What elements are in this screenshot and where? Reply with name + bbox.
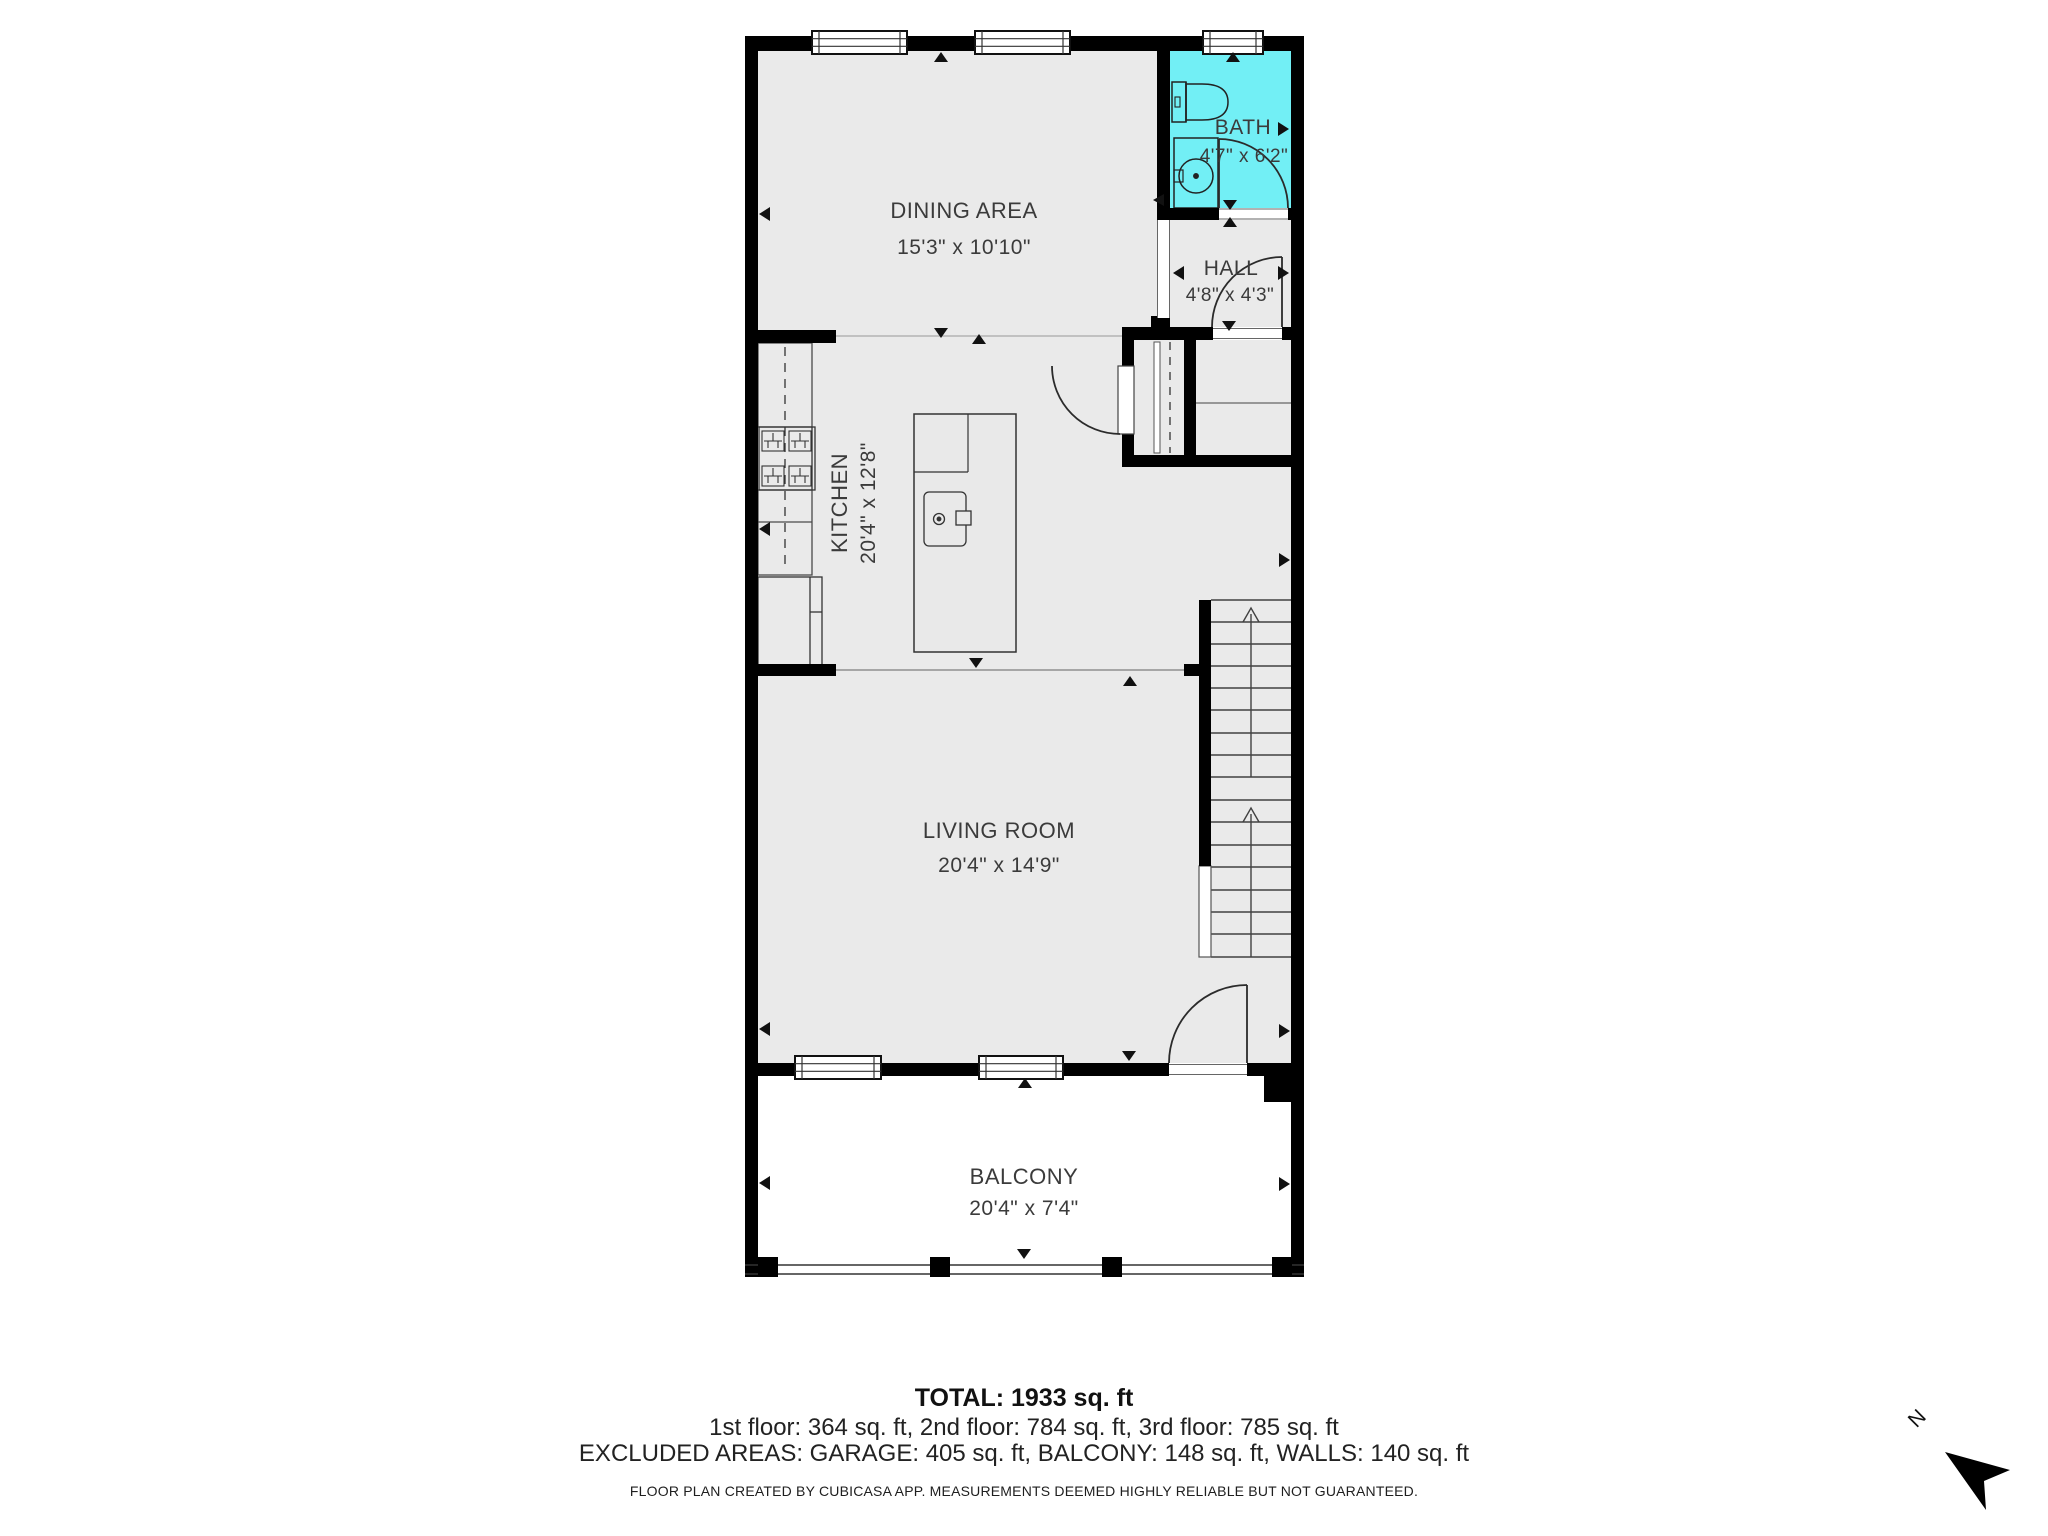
compass: N [1900, 1395, 2048, 1536]
dining-area-dims: 15'3" x 10'10" [897, 236, 1031, 260]
wall-kitchen-stub [745, 330, 836, 343]
kitchen-label-block: KITCHEN 20'4" x 12'8" [825, 442, 883, 564]
disclaimer-text: FLOOR PLAN CREATED BY CUBICASA APP. MEAS… [0, 1483, 2048, 1499]
stair-railing [1199, 866, 1211, 957]
hall-label: HALL [1204, 257, 1259, 281]
window-icon [975, 31, 1070, 54]
bath-dims: 4'7" x 6'2" [1200, 146, 1289, 168]
wall-landing-bottom [1122, 455, 1304, 467]
window-icon [1203, 31, 1263, 54]
hall-dims: 4'8" x 4'3" [1186, 285, 1275, 307]
balcony-label: BALCONY [970, 1164, 1079, 1190]
living-room-label: LIVING ROOM [923, 818, 1075, 844]
wall-closet-right [1184, 340, 1196, 467]
floor-plan-page: DINING AREA 15'3" x 10'10" BATH 4'7" x 6… [0, 0, 2048, 1536]
window-icon [795, 1056, 881, 1079]
floor-areas-text: 1st floor: 364 sq. ft, 2nd floor: 784 sq… [0, 1414, 2048, 1442]
passage-opening [1157, 220, 1170, 318]
window-icon [812, 31, 907, 54]
living-room-dims: 20'4" x 14'9" [938, 854, 1060, 878]
wall-bath-left [1157, 51, 1170, 208]
kitchen-dims: 20'4" x 12'8" [854, 442, 883, 564]
bath-label: BATH [1215, 116, 1271, 140]
wall-stairs-left [1199, 600, 1211, 866]
kitchen-island [914, 414, 1016, 652]
total-area-text: TOTAL: 1933 sq. ft [0, 1384, 2048, 1413]
balcony-dims: 20'4" x 7'4" [969, 1197, 1079, 1221]
wall-left [745, 36, 758, 1277]
dining-area-label: DINING AREA [890, 198, 1037, 224]
floor-plan-drawing [0, 0, 2048, 1536]
excluded-areas-text: EXCLUDED AREAS: GARAGE: 405 sq. ft, BALC… [0, 1440, 2048, 1468]
window-icon [979, 1056, 1063, 1079]
kitchen-label: KITCHEN [825, 442, 854, 564]
